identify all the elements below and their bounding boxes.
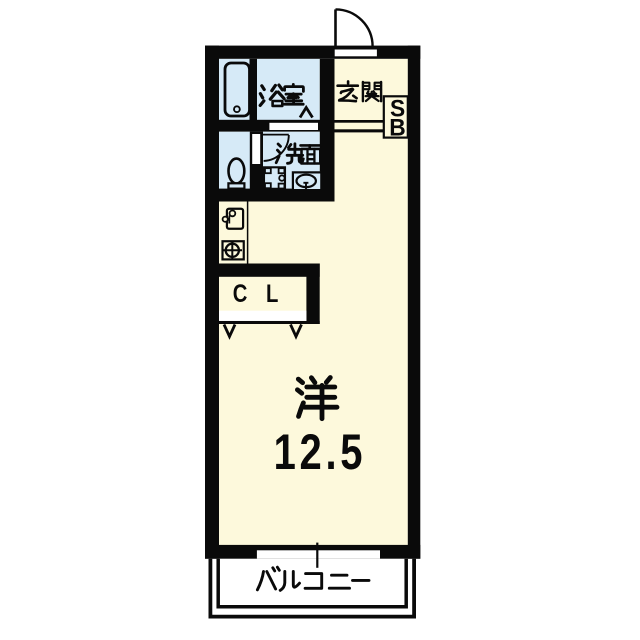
svg-text:12.5: 12.5 [274, 424, 367, 480]
svg-text:B: B [389, 115, 405, 142]
svg-text:C L: C L [233, 279, 285, 308]
